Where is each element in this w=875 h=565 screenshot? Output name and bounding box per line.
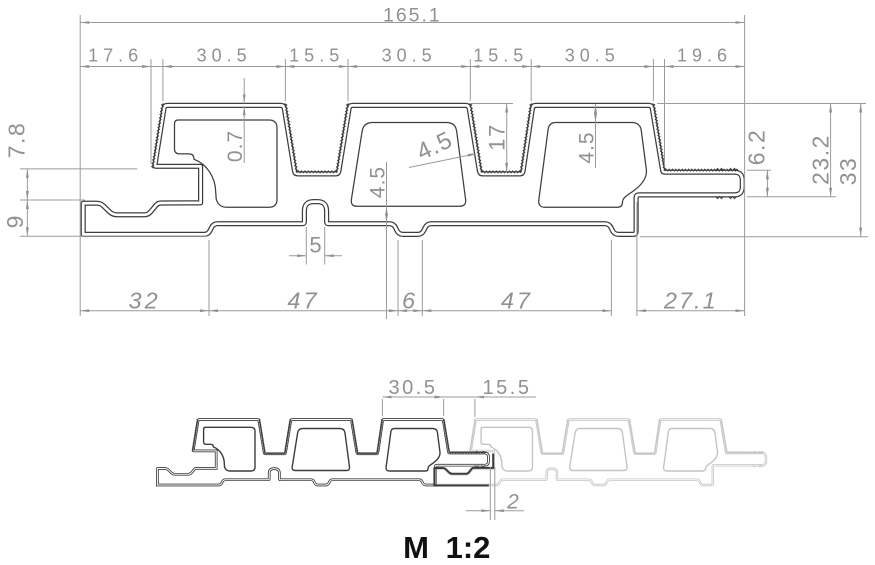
svg-text:47: 47 [287, 288, 319, 314]
svg-text:19.6: 19.6 [677, 46, 732, 66]
svg-text:27.1: 27.1 [663, 288, 718, 314]
svg-text:15.5: 15.5 [289, 46, 344, 66]
svg-text:6.2: 6.2 [743, 129, 769, 165]
svg-text:47: 47 [501, 288, 533, 314]
svg-text:2: 2 [506, 491, 519, 514]
svg-text:5: 5 [309, 233, 321, 258]
svg-text:30.5: 30.5 [382, 46, 437, 66]
svg-text:15.5: 15.5 [473, 46, 528, 66]
svg-text:17.6: 17.6 [88, 46, 143, 66]
svg-text:9: 9 [2, 216, 28, 229]
svg-text:30.5: 30.5 [389, 377, 438, 399]
svg-text:30.5: 30.5 [565, 46, 620, 66]
svg-text:4.5: 4.5 [367, 166, 390, 198]
svg-text:7.8: 7.8 [4, 122, 30, 158]
svg-text:32: 32 [129, 288, 161, 314]
svg-text:M: M [403, 530, 429, 565]
svg-text:4.5: 4.5 [576, 131, 599, 163]
svg-text:15.5: 15.5 [483, 377, 532, 399]
svg-text:1:2: 1:2 [446, 530, 491, 565]
svg-text:23.2: 23.2 [808, 134, 834, 185]
svg-text:17: 17 [485, 123, 510, 150]
svg-text:0.7: 0.7 [224, 130, 247, 162]
svg-text:165.1: 165.1 [383, 5, 442, 27]
svg-text:33: 33 [835, 157, 861, 186]
svg-text:30.5: 30.5 [197, 46, 252, 66]
svg-text:6: 6 [402, 288, 416, 314]
